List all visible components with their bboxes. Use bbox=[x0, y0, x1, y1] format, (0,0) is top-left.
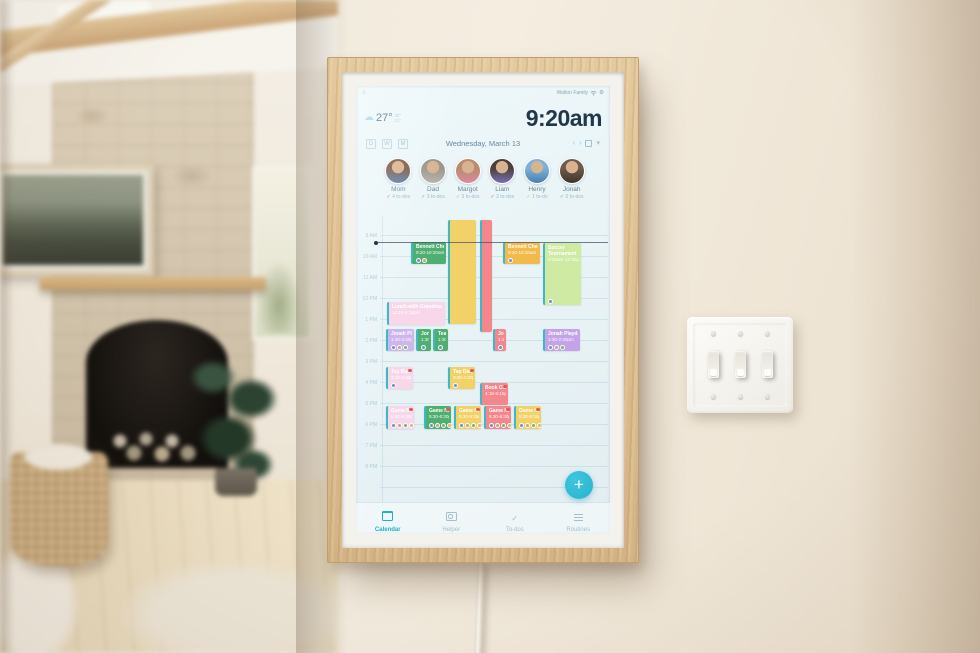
switch-toggle bbox=[708, 351, 719, 378]
check-icon: ✓ bbox=[560, 194, 564, 200]
event-bennett-checkup[interactable]: Bennett Checkup9:20-10:20am bbox=[503, 242, 540, 264]
event-attendees bbox=[391, 345, 409, 350]
bottom-nav: CalendarHelper✓To-dosRoutines bbox=[356, 502, 610, 534]
attendee-avatar bbox=[495, 423, 500, 428]
event-jonah-playdate[interactable]: Jonah Playdate1:30pm bbox=[493, 329, 506, 351]
event-alert-badge bbox=[409, 408, 413, 412]
event-attendees bbox=[416, 258, 428, 263]
hour-line bbox=[380, 235, 608, 236]
attendee-avatar bbox=[507, 423, 511, 428]
account-name: Walton Family bbox=[557, 90, 589, 96]
tab-label: Routines bbox=[547, 527, 611, 533]
light-switch-plate bbox=[687, 317, 793, 413]
add-event-button[interactable]: + bbox=[565, 471, 593, 499]
current-date: Wednesday, March 13 bbox=[364, 139, 602, 148]
attendee-avatar bbox=[435, 423, 440, 428]
account-status: Walton Family ⚙ bbox=[557, 90, 604, 96]
attendee-avatar bbox=[560, 345, 565, 350]
current-time-line bbox=[376, 242, 608, 243]
framed-art bbox=[0, 164, 154, 276]
event-alert-badge bbox=[503, 385, 507, 389]
avatar bbox=[420, 158, 446, 184]
attendee-avatar bbox=[403, 345, 408, 350]
switch-gang-3 bbox=[757, 317, 777, 413]
mantel-shelf bbox=[40, 277, 266, 290]
time-label: 9 AM bbox=[356, 233, 377, 239]
event-time: 9:20-10:20am bbox=[416, 250, 444, 256]
todos-glyph: ✓ bbox=[511, 514, 518, 523]
wall-corner-shade bbox=[850, 0, 980, 653]
person-henry[interactable]: Henry✓ 1 to-do bbox=[520, 158, 555, 213]
hour-line bbox=[380, 361, 608, 362]
helper-glyph bbox=[446, 512, 457, 521]
attendee-avatar bbox=[409, 423, 414, 428]
attendee-avatar bbox=[477, 423, 481, 428]
attendee-avatar bbox=[453, 383, 458, 388]
settings-gear-icon[interactable]: ⚙ bbox=[599, 90, 604, 96]
time-label: 3 PM bbox=[356, 359, 377, 365]
tab-label: Helper bbox=[420, 527, 484, 533]
attendee-avatar bbox=[471, 423, 476, 428]
person-name: Jonah bbox=[554, 186, 589, 193]
person-margot[interactable]: Margot✓ 3 to-dos bbox=[450, 158, 485, 213]
attendee-avatar bbox=[465, 423, 470, 428]
scene: ≡ Walton Family ⚙ ☁ 27° bbox=[0, 0, 980, 653]
person-name: Margot bbox=[450, 186, 485, 193]
event-alert-badge bbox=[536, 408, 540, 412]
tab-helper[interactable]: Helper bbox=[420, 503, 484, 534]
person-todos: ✓ 3 to-dos bbox=[416, 194, 451, 200]
event-attendees bbox=[498, 345, 504, 350]
event-attendees bbox=[421, 345, 427, 350]
attendee-avatar bbox=[548, 299, 553, 304]
todos-icon: ✓ bbox=[511, 514, 518, 523]
event-book-club[interactable]: Book Club4:15-5:15pm bbox=[480, 383, 508, 405]
today-button[interactable] bbox=[585, 140, 592, 147]
event-time: 5:30-6:30pm bbox=[429, 414, 449, 420]
switch-screw bbox=[738, 394, 743, 399]
family-member-row: Mom✓ 4 to-dosDad✓ 3 to-dosMargot✓ 3 to-d… bbox=[356, 158, 610, 213]
event-game-night[interactable]: Game Night5:30-6:30pm bbox=[454, 406, 481, 429]
avatar bbox=[559, 158, 585, 184]
event-game-night[interactable]: Game Night5:30-6:30pm bbox=[386, 406, 414, 429]
helper-icon bbox=[446, 512, 457, 521]
clock: 9:20am bbox=[526, 105, 602, 132]
event-jonah-playdate[interactable]: Jonah Playdate1:30-2:30pm bbox=[543, 329, 580, 351]
room-left-corner bbox=[0, 0, 14, 653]
switch-screw bbox=[765, 331, 770, 336]
event-time: 5:30-6:30pm bbox=[519, 414, 539, 420]
avatar bbox=[489, 158, 515, 184]
event-attendees bbox=[391, 383, 397, 388]
time-label: 5 PM bbox=[356, 401, 377, 407]
event-soccer-tournament[interactable]: Soccer Tournament9:30am-12:30pm bbox=[543, 243, 581, 305]
event-attendees bbox=[489, 423, 511, 428]
event-time: 1:30pm bbox=[438, 337, 446, 343]
event-alert-badge bbox=[408, 369, 412, 373]
event-jonah-playdate[interactable]: Jonah Playdate1:30-2:30pm bbox=[386, 329, 414, 351]
menu-icon[interactable]: ≡ bbox=[362, 90, 366, 96]
plant-pot bbox=[215, 468, 257, 496]
switch-screw bbox=[738, 331, 743, 336]
event-bennett-checkup[interactable]: Bennett Checkup9:20-10:20am bbox=[411, 242, 446, 264]
time-label: 12 PM bbox=[356, 296, 377, 302]
attendee-avatar bbox=[525, 423, 530, 428]
switch-screw bbox=[765, 394, 770, 399]
basket-blanket bbox=[24, 444, 92, 470]
person-liam[interactable]: Liam✓ 2 to-dos bbox=[485, 158, 520, 213]
event-busy[interactable] bbox=[480, 220, 492, 332]
attendee-avatar bbox=[438, 345, 443, 350]
time-label: 6 PM bbox=[356, 422, 377, 428]
calendar-icon bbox=[382, 512, 393, 521]
top-bar: ☁ 27° 32° 21° 9:20am bbox=[364, 103, 602, 133]
prev-day-button[interactable]: ‹ bbox=[573, 140, 575, 147]
check-icon: ✓ bbox=[491, 194, 495, 200]
switch-toggle bbox=[735, 351, 746, 378]
avatar bbox=[385, 158, 411, 184]
event-attendees bbox=[429, 423, 451, 428]
attendee-avatar bbox=[391, 423, 396, 428]
check-icon: ✓ bbox=[421, 194, 425, 200]
time-label: 8 PM bbox=[356, 464, 377, 470]
attendee-avatar bbox=[441, 423, 446, 428]
attendee-avatar bbox=[397, 345, 402, 350]
calendar-wood-frame: ≡ Walton Family ⚙ ☁ 27° bbox=[327, 57, 639, 563]
status-bar: ≡ Walton Family ⚙ bbox=[356, 88, 610, 98]
calendar-header: DWM Wednesday, March 13 ‹›▾ bbox=[364, 138, 602, 151]
frame-mat: ≡ Walton Family ⚙ ☁ 27° bbox=[342, 72, 624, 548]
switch-gang-2 bbox=[730, 317, 750, 413]
attendee-avatar bbox=[519, 423, 524, 428]
next-day-button[interactable]: › bbox=[579, 140, 581, 147]
event-time: 1:30-2:30pm bbox=[391, 337, 412, 343]
living-room-background bbox=[0, 0, 338, 653]
hour-line bbox=[380, 445, 608, 446]
event-team-meeting[interactable]: Team Meeting1:30pm bbox=[433, 329, 448, 351]
attendee-avatar bbox=[416, 258, 421, 263]
event-time: 5:30-6:30pm bbox=[459, 414, 479, 420]
person-name: Liam bbox=[485, 186, 520, 193]
person-mom[interactable]: Mom✓ 4 to-dos bbox=[381, 158, 416, 213]
calendar-glyph bbox=[382, 511, 393, 521]
event-alert-badge bbox=[446, 408, 450, 412]
hour-line bbox=[380, 466, 608, 467]
event-time: 12:15-1:15pm bbox=[392, 310, 443, 316]
temp-high-low: 32° 21° bbox=[395, 113, 401, 124]
time-label: 11 AM bbox=[356, 275, 377, 281]
event-alert-badge bbox=[506, 408, 510, 412]
person-dad[interactable]: Dad✓ 3 to-dos bbox=[416, 158, 451, 213]
attendee-avatar bbox=[403, 423, 408, 428]
event-attendees bbox=[391, 423, 414, 428]
person-todos: ✓ 1 to-do bbox=[520, 194, 555, 200]
event-jonah-playdate[interactable]: Jonah Playdate1:30pm bbox=[416, 329, 431, 351]
wifi-icon bbox=[590, 90, 597, 96]
attendee-avatar bbox=[508, 258, 513, 263]
event-time: 9:30am-12:30pm bbox=[548, 257, 579, 263]
window bbox=[252, 166, 312, 340]
event-time: 5:30-6:30pm bbox=[391, 414, 412, 420]
attendee-avatar bbox=[447, 423, 451, 428]
check-icon: ✓ bbox=[387, 194, 391, 200]
time-label: 2 PM bbox=[356, 338, 377, 344]
time-label: 10 AM bbox=[356, 254, 377, 260]
attendee-avatar bbox=[391, 383, 396, 388]
attendee-avatar bbox=[391, 345, 396, 350]
weather-widget: ☁ 27° 32° 21° bbox=[364, 112, 401, 124]
current-temp: 27° bbox=[376, 112, 393, 124]
person-jonah[interactable]: Jonah✓ 0 to-dos bbox=[554, 158, 589, 213]
art-image bbox=[3, 175, 143, 265]
event-time: 9:20-10:20am bbox=[508, 250, 538, 256]
power-cable bbox=[474, 561, 484, 653]
cloud-icon: ☁ bbox=[364, 113, 374, 123]
event-attendees bbox=[519, 423, 541, 428]
attendee-avatar bbox=[554, 345, 559, 350]
check-icon: ✓ bbox=[526, 194, 530, 200]
time-label: 7 PM bbox=[356, 443, 377, 449]
attendee-avatar bbox=[501, 423, 506, 428]
routines-glyph bbox=[574, 514, 583, 521]
person-name: Mom bbox=[381, 186, 416, 193]
tab-label: To-dos bbox=[483, 527, 547, 533]
avatar bbox=[524, 158, 550, 184]
event-tap-dance[interactable]: Tap Dance3:30-4:30pm bbox=[448, 367, 475, 389]
event-attendees bbox=[453, 383, 459, 388]
event-title: Soccer Tournament bbox=[548, 245, 579, 257]
switch-screw bbox=[711, 394, 716, 399]
event-attendees bbox=[548, 299, 554, 304]
current-time-dot bbox=[374, 241, 378, 245]
attendee-avatar bbox=[459, 423, 464, 428]
tab-label: Calendar bbox=[356, 527, 420, 533]
day-schedule-grid: 9 AM10 AM11 AM12 PM1 PM2 PM3 PM4 PM5 PM6… bbox=[356, 216, 610, 506]
device-screen: ≡ Walton Family ⚙ ☁ 27° bbox=[356, 86, 610, 534]
event-attendees bbox=[508, 258, 514, 263]
event-attendees bbox=[459, 423, 481, 428]
event-time: 1:30pm bbox=[498, 337, 504, 343]
tab-calendar[interactable]: Calendar bbox=[356, 503, 420, 534]
attendee-avatar bbox=[537, 423, 541, 428]
event-attendees bbox=[438, 345, 444, 350]
attendee-avatar bbox=[422, 258, 427, 263]
time-label: 1 PM bbox=[356, 317, 377, 323]
check-icon: ✓ bbox=[456, 194, 460, 200]
switch-toggle bbox=[762, 351, 773, 378]
person-todos: ✓ 3 to-dos bbox=[450, 194, 485, 200]
tab-routines[interactable]: Routines bbox=[547, 503, 611, 534]
tab-to-dos[interactable]: ✓To-dos bbox=[483, 503, 547, 534]
attendee-avatar bbox=[548, 345, 553, 350]
person-name: Dad bbox=[416, 186, 451, 193]
wicker-basket bbox=[10, 452, 108, 566]
attendee-avatar bbox=[397, 423, 402, 428]
switch-gang-1 bbox=[703, 317, 723, 413]
event-game-night[interactable]: Game Night5:30-6:30pm bbox=[514, 406, 541, 429]
temp-low: 21° bbox=[395, 118, 401, 123]
event-busy[interactable] bbox=[448, 220, 476, 324]
attendee-avatar bbox=[421, 345, 426, 350]
event-time: 3:30-4:30pm bbox=[453, 375, 473, 381]
event-attendees bbox=[548, 345, 566, 350]
event-lunch-with-grandma[interactable]: Lunch with Grandma12:15-1:15pm bbox=[387, 302, 445, 325]
event-game-night[interactable]: Game Night5:30-6:30pm bbox=[484, 406, 511, 429]
switch-screw bbox=[711, 331, 716, 336]
header-actions: ‹›▾ bbox=[573, 138, 600, 148]
attendee-avatar bbox=[498, 345, 503, 350]
person-todos: ✓ 4 to-dos bbox=[381, 194, 416, 200]
event-alert-badge bbox=[470, 369, 474, 373]
event-game-night[interactable]: Game Night5:30-6:30pm bbox=[424, 406, 451, 429]
window-greenery bbox=[259, 263, 299, 333]
attendee-avatar bbox=[429, 423, 434, 428]
attendee-avatar bbox=[531, 423, 536, 428]
time-label: 4 PM bbox=[356, 380, 377, 386]
more-button[interactable]: ▾ bbox=[596, 140, 600, 147]
event-alert-badge bbox=[476, 408, 480, 412]
event-time: 5:30-6:30pm bbox=[489, 414, 509, 420]
event-time: 1:30pm bbox=[421, 337, 429, 343]
person-name: Henry bbox=[520, 186, 555, 193]
person-todos: ✓ 2 to-dos bbox=[485, 194, 520, 200]
person-todos: ✓ 0 to-dos bbox=[554, 194, 589, 200]
avatar bbox=[455, 158, 481, 184]
attendee-avatar bbox=[489, 423, 494, 428]
event-tap-dance[interactable]: Tap Dance3:30-4:30pm bbox=[386, 367, 413, 389]
routines-icon bbox=[574, 513, 583, 522]
event-time: 3:30-4:30pm bbox=[391, 375, 411, 381]
event-time: 1:30-2:30pm bbox=[548, 337, 578, 343]
event-time: 4:15-5:15pm bbox=[485, 391, 506, 397]
